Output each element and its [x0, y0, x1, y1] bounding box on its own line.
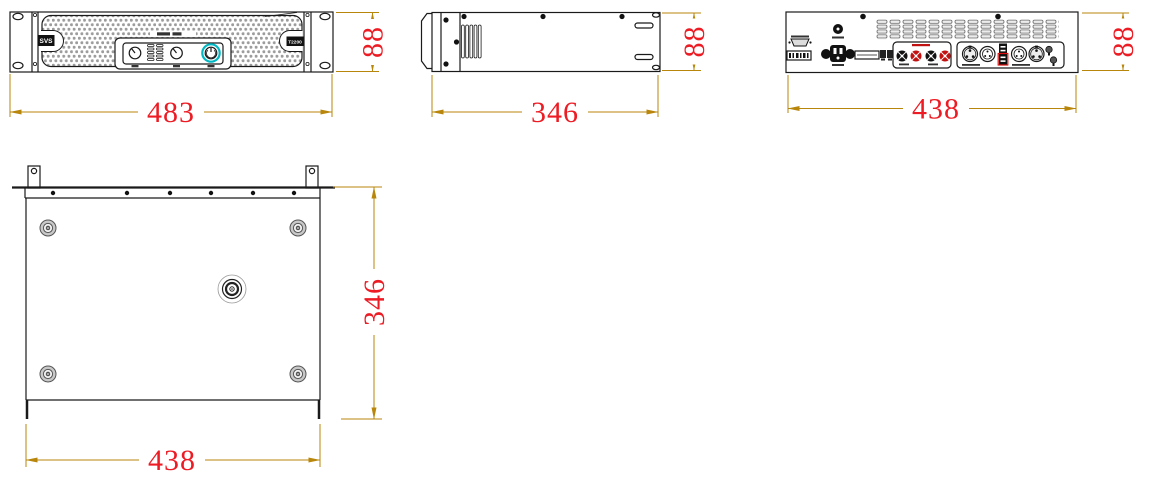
rack-ear-tab: [306, 166, 318, 188]
dimension-value: 88: [1107, 26, 1140, 58]
gain-knob-ch2: [171, 47, 183, 59]
dimension-value: 88: [678, 26, 711, 58]
control-panel: [115, 38, 231, 69]
side-body-outline: [432, 13, 660, 72]
xlr-male-connector: [1012, 47, 1027, 62]
rubber-foot: [40, 366, 56, 382]
transformer-mount: [218, 275, 246, 303]
power-button: [202, 44, 219, 61]
dimension-drawing: SVS T2200: [0, 0, 1149, 491]
label-slot: [855, 51, 879, 59]
brand-label: SVS: [39, 38, 53, 45]
dimension-value: 483: [147, 96, 195, 129]
panel-title-marks: [150, 31, 196, 38]
front-view: SVS T2200: [10, 12, 390, 129]
gain-knob-ch1: [129, 47, 141, 59]
dimension-side-depth: 346: [432, 75, 658, 129]
back-screw: [860, 14, 866, 20]
speaker-output-panel: [893, 42, 951, 68]
dimension-back-width: 438: [788, 75, 1076, 126]
front-handle: [422, 14, 433, 69]
mode-switch: [998, 44, 1008, 66]
dimension-back-height: 88: [1082, 13, 1140, 71]
dimension-value: 438: [912, 93, 960, 126]
binding-post-black: [897, 51, 908, 62]
dimension-value: 346: [358, 278, 391, 326]
back-vent-grille: [876, 20, 1059, 40]
dimension-front-width: 483: [10, 74, 332, 129]
back-screw: [995, 14, 1001, 20]
xlr-panel: [957, 42, 1064, 68]
dimension-top-width: 438: [26, 424, 320, 477]
back-view: 438 88: [786, 12, 1140, 126]
xlr-male-connector: [980, 47, 995, 62]
rubber-foot: [40, 220, 56, 236]
dimension-front-height: 88: [336, 13, 390, 72]
xlr-female-connector: [1029, 46, 1044, 62]
dimension-side-height: 88: [662, 13, 711, 71]
chassis-outline: [26, 198, 320, 419]
rubber-foot: [290, 220, 306, 236]
binding-post-red: [911, 51, 922, 62]
rubber-foot: [290, 366, 306, 382]
dimension-value: 346: [531, 96, 579, 129]
output-label-marks: [912, 44, 930, 46]
dimension-value: 438: [148, 444, 196, 477]
model-label: T2200: [288, 40, 302, 46]
barcode-label: [787, 51, 811, 60]
binding-post-black: [926, 51, 937, 62]
dimension-value: 88: [357, 26, 390, 58]
dimension-top-depth: 346: [333, 187, 391, 419]
top-screws: [51, 191, 296, 195]
drawing-canvas: SVS T2200: [0, 0, 1149, 491]
rack-ear-tab: [28, 166, 40, 188]
xlr-female-connector: [963, 46, 978, 62]
side-view: 346 88: [422, 13, 712, 130]
binding-post-red: [940, 51, 951, 62]
top-view: 346 438: [12, 166, 391, 477]
